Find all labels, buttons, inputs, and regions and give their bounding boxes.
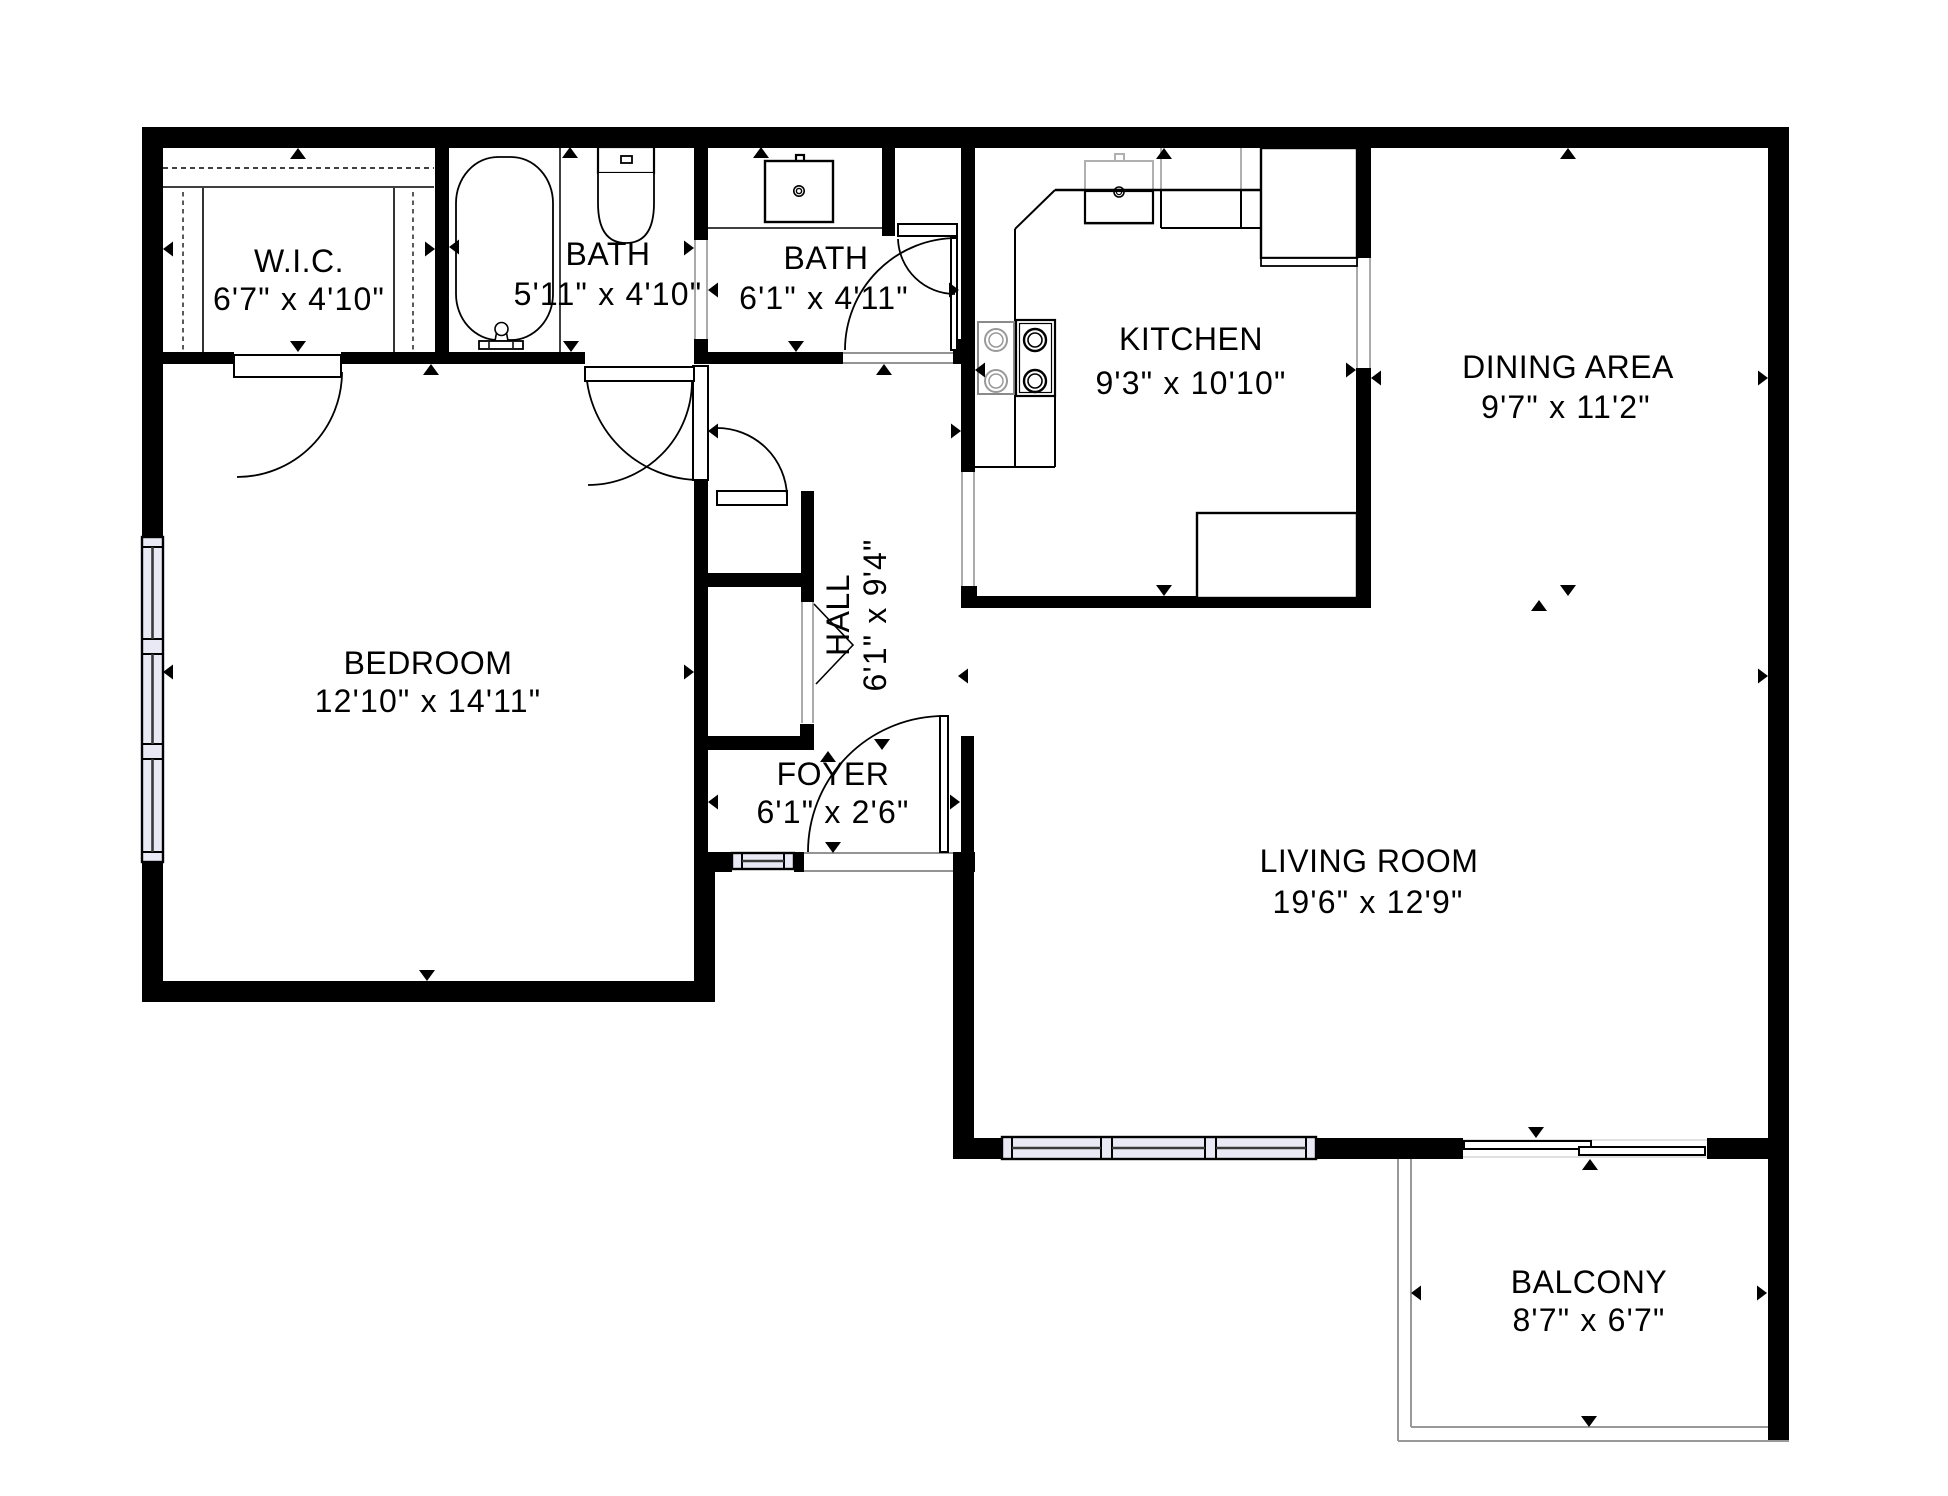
svg-text:BATH: BATH	[784, 240, 869, 276]
svg-text:FOYER: FOYER	[777, 756, 890, 792]
svg-text:LIVING ROOM: LIVING ROOM	[1260, 843, 1479, 879]
svg-text:6'1" x 2'6": 6'1" x 2'6"	[756, 794, 909, 830]
svg-text:9'7" x 11'2": 9'7" x 11'2"	[1481, 389, 1651, 425]
svg-text:5'11" x 4'10": 5'11" x 4'10"	[514, 276, 703, 312]
svg-text:19'6" x 12'9": 19'6" x 12'9"	[1272, 884, 1463, 920]
svg-text:BALCONY: BALCONY	[1511, 1264, 1667, 1300]
svg-text:DINING AREA: DINING AREA	[1462, 349, 1674, 385]
svg-text:8'7" x 6'7": 8'7" x 6'7"	[1512, 1302, 1665, 1338]
svg-text:BATH: BATH	[566, 236, 651, 272]
svg-text:6'1" x 9'4": 6'1" x 9'4"	[857, 538, 893, 691]
svg-text:W.I.C.: W.I.C.	[254, 243, 344, 279]
svg-text:12'10" x 14'11": 12'10" x 14'11"	[315, 683, 542, 719]
svg-text:KITCHEN: KITCHEN	[1119, 321, 1263, 357]
svg-text:BEDROOM: BEDROOM	[344, 645, 513, 681]
svg-text:6'1" x 4'11": 6'1" x 4'11"	[739, 280, 909, 316]
svg-text:HALL: HALL	[820, 574, 856, 656]
svg-text:6'7" x 4'10": 6'7" x 4'10"	[213, 281, 385, 317]
svg-text:9'3" x 10'10": 9'3" x 10'10"	[1095, 365, 1286, 401]
